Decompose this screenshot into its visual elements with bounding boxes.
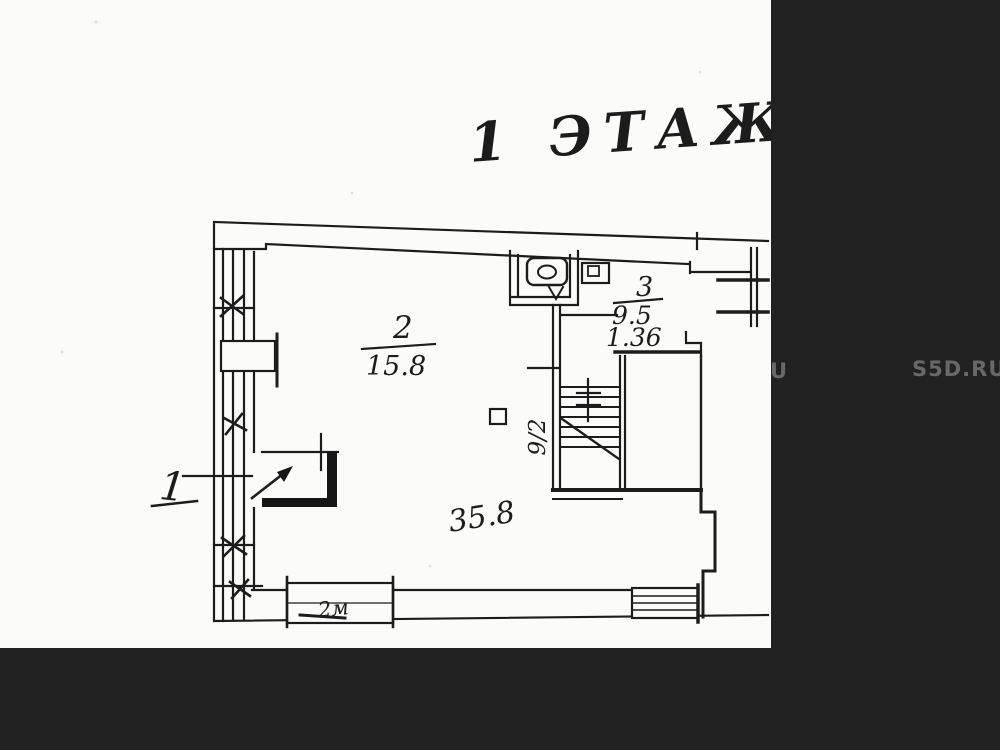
- window-mark-note: 2м: [316, 595, 350, 622]
- room1-number: 1: [157, 463, 187, 511]
- floor-title: 1 ЭТАЖ: [467, 88, 771, 175]
- floor-plan-svg: 1 ЭТАЖ 1 2 15.8 3 9.5 1.36 35.8 9/2 2м: [0, 0, 771, 648]
- column-mark: [490, 409, 506, 424]
- stair-run-note: 9/2: [525, 418, 551, 455]
- toilet-icon: [527, 258, 567, 299]
- screenshot-root: 1 ЭТАЖ 1 2 15.8 3 9.5 1.36 35.8 9/2 2м U…: [0, 0, 1000, 750]
- hall-area-note: 35.8: [446, 495, 517, 540]
- stair-direction-icon: [577, 379, 600, 421]
- chimney-block: [221, 334, 277, 386]
- top-inner-wall: [214, 244, 688, 264]
- watermark-partial: U: [770, 359, 788, 383]
- stair-side-walls: [620, 356, 625, 490]
- entry-arrow-icon: [252, 466, 293, 498]
- bottom-window-right: [632, 585, 698, 622]
- left-wall-inner-lines: [223, 249, 254, 621]
- scanned-floor-plan-page: 1 ЭТАЖ 1 2 15.8 3 9.5 1.36 35.8 9/2 2м: [0, 0, 771, 648]
- stair-diagonal: [562, 419, 619, 459]
- stairwell: [553, 356, 701, 499]
- right-room: [615, 352, 701, 490]
- room2-area: 15.8: [366, 351, 426, 382]
- room3-sub-area: 1.36: [606, 323, 662, 352]
- room3-number: 3: [636, 272, 653, 303]
- floor-plan-drawing: 1 ЭТАЖ 1 2 15.8 3 9.5 1.36 35.8 9/2 2м: [61, 20, 772, 627]
- room2-number: 2: [392, 310, 413, 346]
- sink-icon: [582, 263, 609, 283]
- watermark-site: S5D.RU: [912, 357, 1000, 381]
- entrance-block: [252, 434, 338, 507]
- right-edge-walls: [718, 280, 768, 312]
- room3-walls: [686, 233, 768, 356]
- right-wall-notch: [701, 490, 715, 617]
